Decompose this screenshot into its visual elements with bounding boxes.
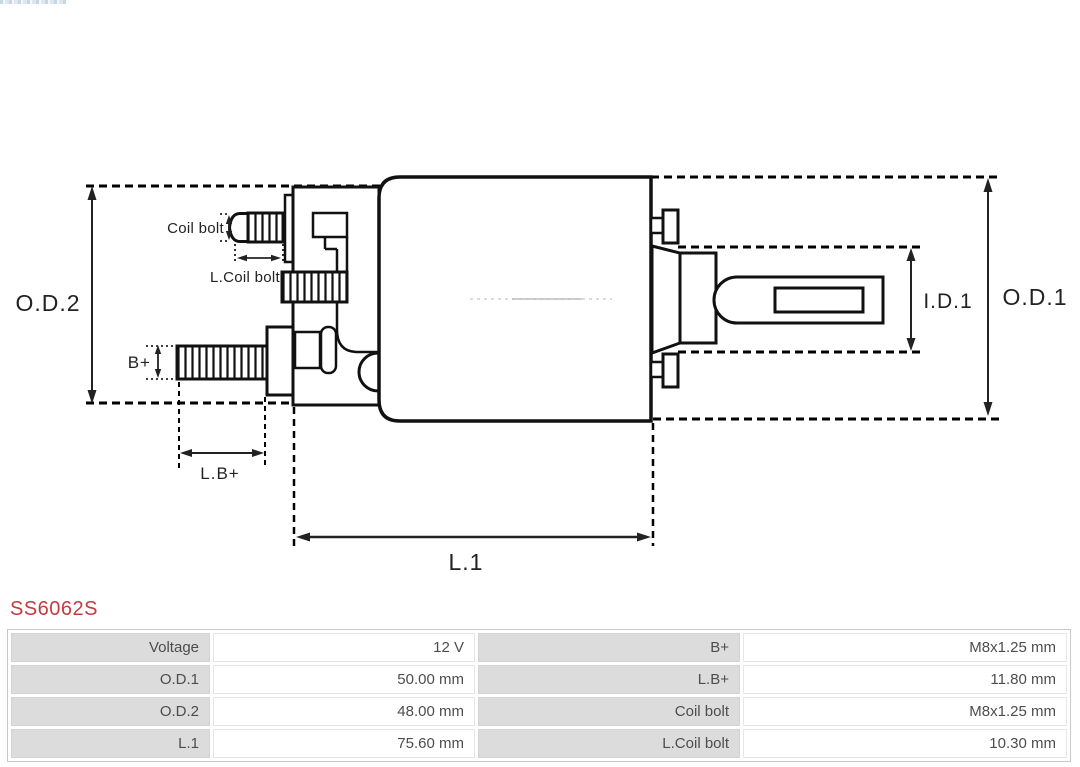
coil-bolt-head — [230, 214, 249, 242]
coil-bolt-label: Coil bolt — [167, 220, 224, 237]
id1-label: I.D.1 — [923, 290, 972, 313]
product-dimensions-page: O.D.2 O.D.1 I.D.1 L.1 L.B+ B+ Coil bolt … — [0, 0, 1080, 767]
table-row: O.D.2 48.00 mm Coil bolt M8x1.25 mm — [11, 697, 1067, 726]
spec-value: 10.30 mm — [743, 729, 1067, 758]
spec-label: Voltage — [11, 633, 210, 662]
spec-label: L.1 — [11, 729, 210, 758]
spec-label: O.D.1 — [11, 665, 210, 694]
table-row: O.D.1 50.00 mm L.B+ 11.80 mm — [11, 665, 1067, 694]
spec-label: L.Coil bolt — [478, 729, 740, 758]
spec-value: 48.00 mm — [213, 697, 475, 726]
b-plus-arrow — [155, 345, 161, 378]
coil-thread-block — [282, 272, 347, 302]
plunger-slot — [775, 288, 863, 312]
lb-plus-label: L.B+ — [200, 464, 239, 483]
l1-arrow — [296, 533, 651, 542]
spec-label: Coil bolt — [478, 697, 740, 726]
part-number: SS6062S — [10, 598, 98, 621]
spec-label: B+ — [478, 633, 740, 662]
spec-label: L.B+ — [478, 665, 740, 694]
lb-plus-arrow — [180, 449, 264, 457]
solenoid-dimension-diagram: O.D.2 O.D.1 I.D.1 L.1 L.B+ B+ Coil bolt … — [0, 0, 1080, 592]
od2-label: O.D.2 — [15, 290, 80, 316]
spec-table: Voltage 12 V B+ M8x1.25 mm O.D.1 50.00 m… — [7, 629, 1071, 762]
spec-value: 11.80 mm — [743, 665, 1067, 694]
l-coil-bolt-label: L.Coil bolt — [210, 269, 281, 286]
id1-arrow — [907, 248, 916, 351]
table-row: Voltage 12 V B+ M8x1.25 mm — [11, 633, 1067, 662]
spec-value: 50.00 mm — [213, 665, 475, 694]
l1-label: L.1 — [449, 549, 484, 575]
spec-value: M8x1.25 mm — [743, 697, 1067, 726]
od2-arrow — [88, 186, 97, 404]
bracket-notch — [313, 213, 347, 237]
spec-label: O.D.2 — [11, 697, 210, 726]
plunger-assembly — [652, 246, 883, 353]
od1-label: O.D.1 — [1002, 284, 1067, 310]
b-plus-thread — [177, 346, 267, 379]
spec-value: 12 V — [213, 633, 475, 662]
b-plus-pin — [321, 327, 336, 373]
table-row: L.1 75.60 mm L.Coil bolt 10.30 mm — [11, 729, 1067, 758]
b-plus-washer — [295, 332, 320, 368]
coil-bolt — [230, 213, 284, 242]
od1-arrow — [984, 178, 993, 416]
b-plus-nut — [267, 327, 293, 395]
l-coil-bolt-arrow — [237, 255, 281, 261]
coil-bolt-thread — [248, 213, 283, 242]
spec-value: M8x1.25 mm — [743, 633, 1067, 662]
spec-value: 75.60 mm — [213, 729, 475, 758]
b-plus-label: B+ — [128, 353, 151, 372]
